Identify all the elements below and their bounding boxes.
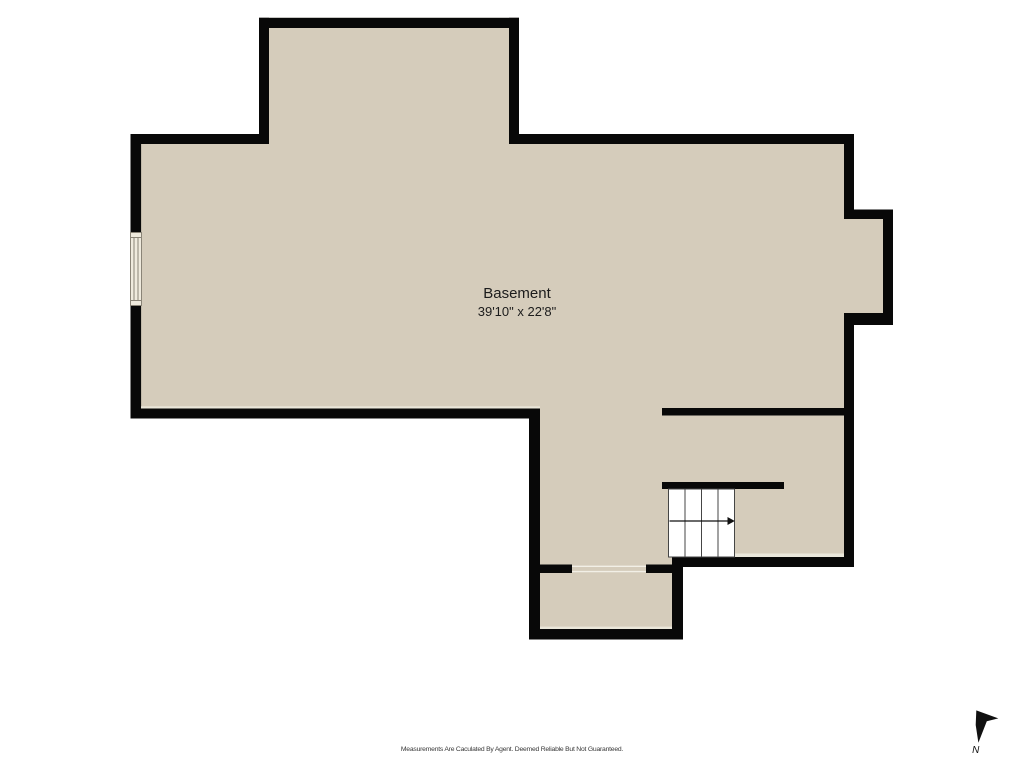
svg-text:Basement: Basement xyxy=(483,285,551,302)
svg-text:N: N xyxy=(972,745,980,756)
svg-text:Measurements Are Caculated By: Measurements Are Caculated By Agent. Dee… xyxy=(401,746,624,753)
svg-text:39'10" x 22'8": 39'10" x 22'8" xyxy=(478,304,557,319)
